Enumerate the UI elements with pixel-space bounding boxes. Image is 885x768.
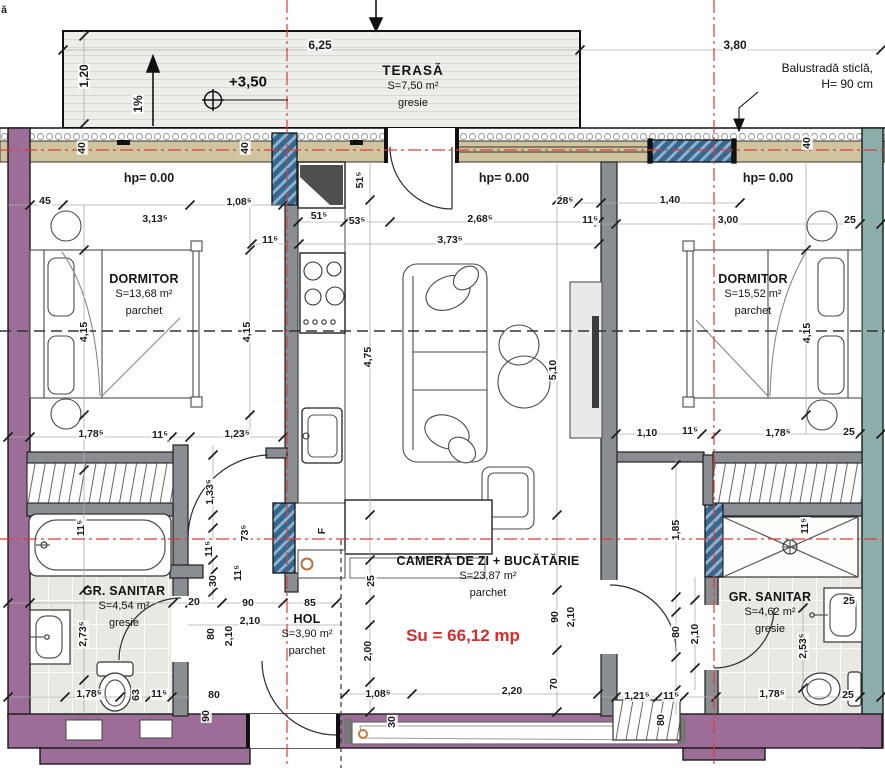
terrace-slab — [63, 31, 580, 128]
sofa — [403, 261, 487, 468]
tv-unit — [570, 282, 602, 438]
floor-plan-drawing — [0, 0, 885, 768]
floor-plan: TERASĂ S=7,50 m² gresie +3,50 Balustradă… — [0, 0, 885, 768]
